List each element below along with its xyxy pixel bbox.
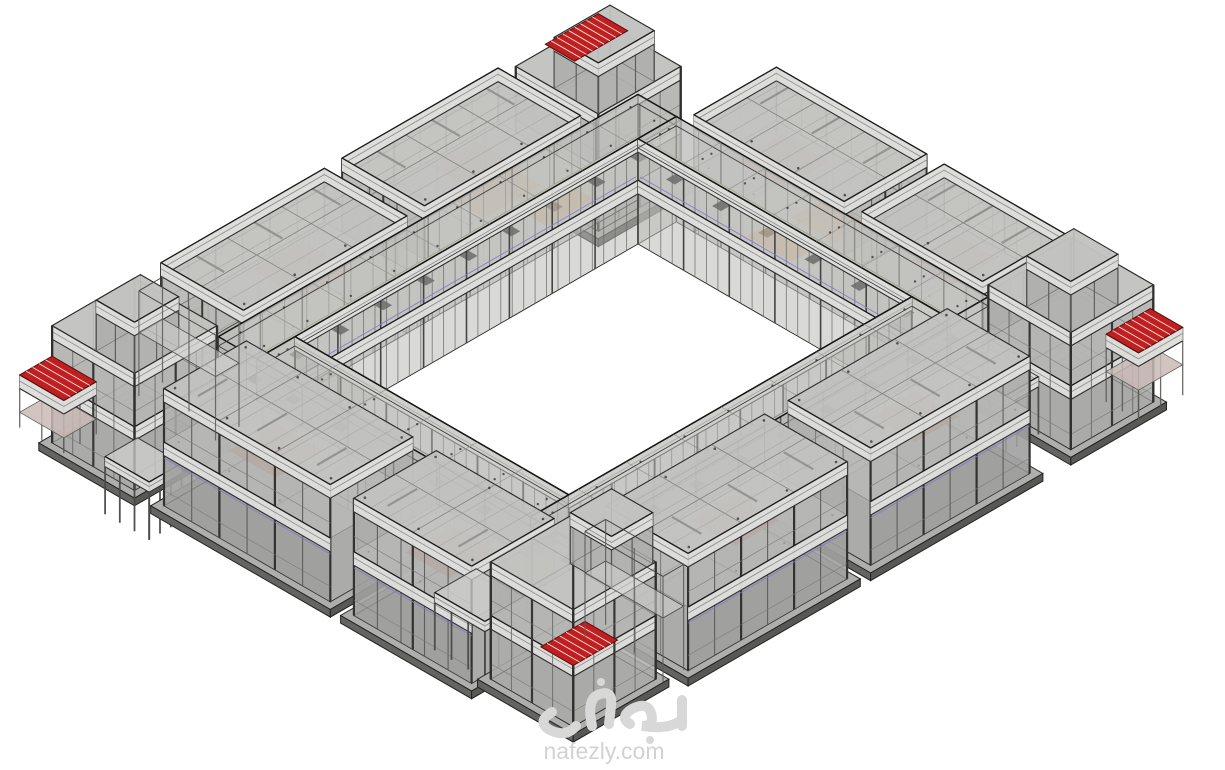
svg-text:nafezly.com: nafezly.com <box>543 738 664 764</box>
